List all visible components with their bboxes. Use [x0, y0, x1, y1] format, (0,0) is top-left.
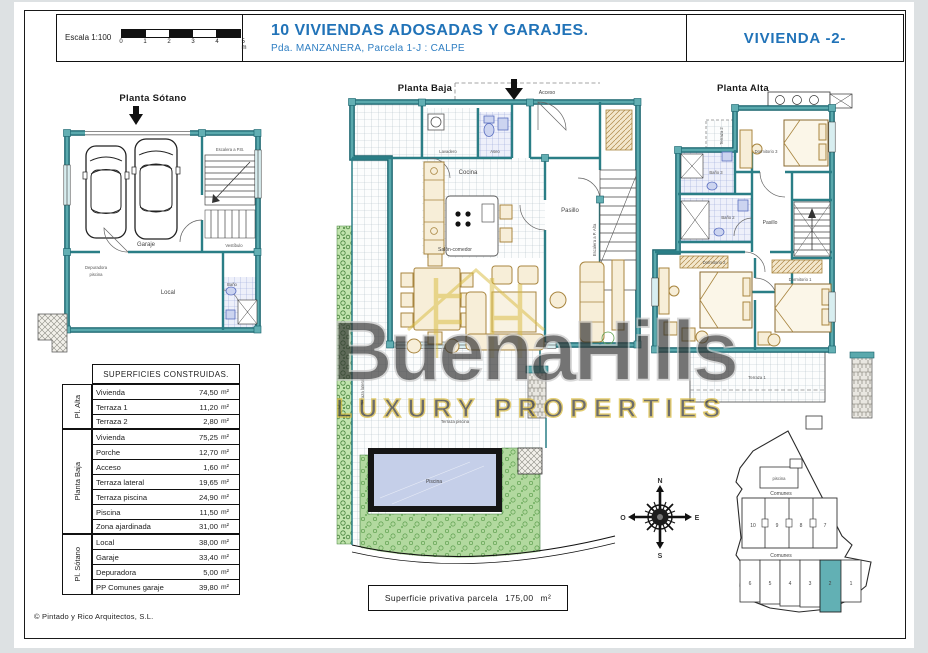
table-row: Porche12,70m² [92, 445, 240, 460]
caption-label: Superficie privativa parcela [385, 593, 498, 603]
group-planta-baja: Planta Baja [62, 430, 92, 535]
drawing-sheet-page: Planta Sótano [0, 0, 928, 653]
surfaces-table: SUPERFICIES CONSTRUIDAS. Pl. Alta Planta… [62, 364, 240, 595]
table-row: Terraza 22,80m² [92, 415, 240, 430]
table-row: Local38,00m² [92, 535, 240, 550]
table-row: PP Comunes garaje39,80m² [92, 580, 240, 595]
group-pl-alta: Pl. Alta [62, 385, 92, 430]
table-row: Depuradora5,00m² [92, 565, 240, 580]
copyright-note: © Pintado y Rico Arquitectos, S.L. [34, 612, 153, 621]
surfaces-table-groups: Pl. Alta Planta Baja Pl. Sótano [62, 384, 92, 595]
table-row: Zona ajardinada31,00m² [92, 520, 240, 535]
title-block: Escala 1:100 0 1 2 3 4 5 m 10 VIVIENDAS … [56, 14, 904, 62]
project-title: 10 VIVIENDAS ADOSADAS Y GARAJES. [271, 22, 686, 40]
scale-bar: 0 1 2 3 4 5 m [121, 29, 241, 47]
scale-cell: Escala 1:100 0 1 2 3 4 5 m [57, 15, 243, 61]
project-subtitle: Pda. MANZANERA, Parcela 1-J : CALPE [271, 43, 686, 54]
surfaces-table-rows: Vivienda74,50m² Terraza 111,20m² Terraza… [92, 384, 240, 595]
scale-bar-ticks: 0 1 2 3 4 5 m [121, 38, 241, 47]
table-row: Terraza 111,20m² [92, 400, 240, 415]
caption-unit: m² [540, 593, 551, 603]
table-row: Terraza piscina24,90m² [92, 490, 240, 505]
scale-label: Escala 1:100 [65, 33, 111, 42]
project-title-cell: 10 VIVIENDAS ADOSADAS Y GARAJES. Pda. MA… [243, 15, 687, 61]
table-row: Piscina11,50m² [92, 505, 240, 520]
table-row: Vivienda75,25m² [92, 430, 240, 445]
unit-title: VIVIENDA -2- [744, 30, 846, 47]
table-row: Acceso1,60m² [92, 460, 240, 475]
parcel-surface-caption: Superficie privativa parcela 175,00 m² [368, 585, 568, 611]
table-row: Vivienda74,50m² [92, 385, 240, 400]
group-pl-sotano: Pl. Sótano [62, 535, 92, 595]
scale-bar-segments [121, 29, 241, 38]
surfaces-table-header: SUPERFICIES CONSTRUIDAS. [92, 364, 240, 384]
unit-title-cell: VIVIENDA -2- [687, 15, 903, 61]
caption-value: 175,00 [505, 593, 533, 603]
table-row: Garaje33,40m² [92, 550, 240, 565]
table-row: Terraza lateral19,65m² [92, 475, 240, 490]
